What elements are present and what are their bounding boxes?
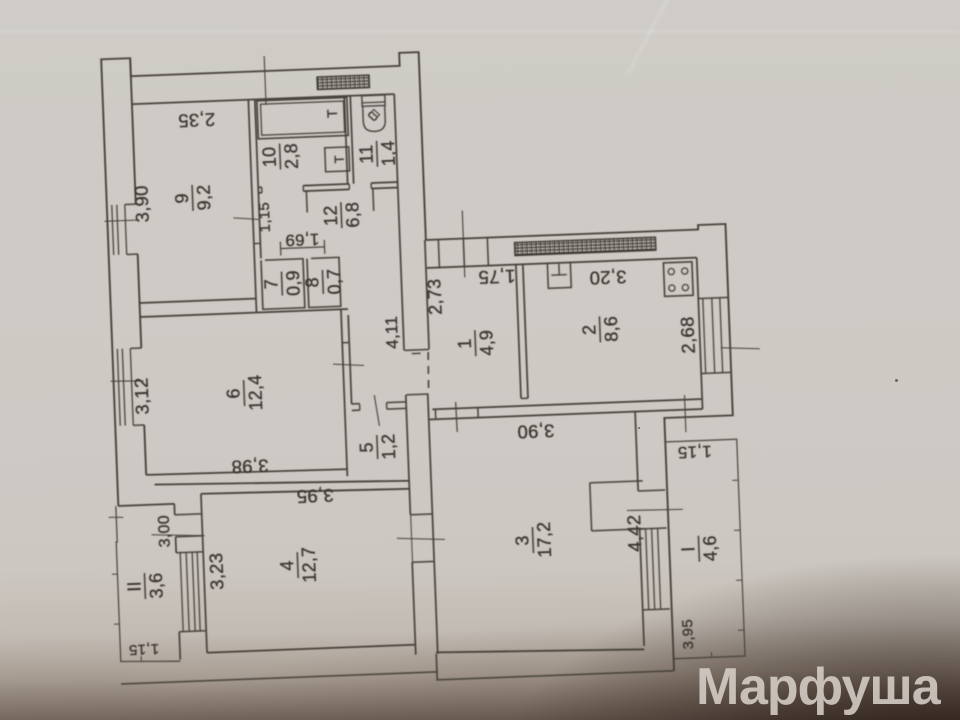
svg-text:1,75: 1,75: [478, 266, 516, 288]
svg-text:2,8: 2,8: [281, 143, 302, 169]
svg-text:6,8: 6,8: [342, 202, 363, 228]
svg-text:5: 5: [357, 442, 377, 453]
svg-text:3,23: 3,23: [205, 552, 227, 590]
svg-text:Т: Т: [324, 109, 340, 119]
svg-text:1,15: 1,15: [128, 640, 159, 658]
svg-text:4,6: 4,6: [700, 535, 721, 561]
svg-text:10: 10: [259, 146, 280, 167]
svg-text:3,20: 3,20: [589, 266, 627, 288]
svg-text:1,15: 1,15: [677, 442, 712, 462]
svg-text:2,35: 2,35: [178, 109, 216, 131]
svg-text:4,42: 4,42: [623, 514, 645, 552]
svg-text:0,9: 0,9: [283, 270, 304, 296]
svg-text:1,2: 1,2: [378, 433, 399, 459]
svg-text:1,15: 1,15: [256, 202, 274, 233]
svg-text:12,4: 12,4: [245, 374, 266, 411]
svg-text:0,7: 0,7: [324, 268, 345, 294]
svg-text:2,68: 2,68: [676, 316, 698, 354]
svg-text:3,12: 3,12: [130, 377, 152, 415]
svg-text:1,69: 1,69: [285, 230, 320, 250]
svg-text:3,95: 3,95: [296, 485, 334, 507]
svg-text:8: 8: [302, 277, 322, 288]
svg-text:4: 4: [277, 560, 297, 571]
svg-text:II: II: [124, 581, 144, 592]
svg-text:3,00: 3,00: [156, 515, 174, 548]
svg-text:12,7: 12,7: [299, 546, 320, 583]
svg-text:I: I: [678, 546, 698, 552]
svg-text:3,90: 3,90: [517, 420, 555, 442]
svg-text:Т: Т: [331, 155, 346, 164]
svg-text:8,6: 8,6: [601, 316, 622, 342]
svg-text:17,2: 17,2: [534, 521, 555, 558]
svg-text:6: 6: [223, 388, 243, 399]
svg-text:3,6: 3,6: [146, 572, 167, 598]
svg-text:1: 1: [455, 338, 475, 349]
svg-text:3,95: 3,95: [679, 619, 697, 650]
svg-text:12: 12: [320, 205, 341, 226]
svg-text:3,98: 3,98: [231, 455, 269, 477]
svg-text:4,11: 4,11: [382, 315, 402, 349]
svg-text:3,90: 3,90: [130, 185, 152, 223]
svg-text:2,73: 2,73: [425, 278, 446, 315]
svg-text:7: 7: [261, 278, 281, 289]
svg-text:11: 11: [356, 144, 377, 164]
svg-text:3: 3: [512, 535, 532, 546]
svg-text:2: 2: [579, 324, 599, 335]
svg-text:9,2: 9,2: [194, 184, 215, 210]
svg-text:4,9: 4,9: [476, 330, 497, 356]
svg-text:9: 9: [172, 193, 192, 204]
